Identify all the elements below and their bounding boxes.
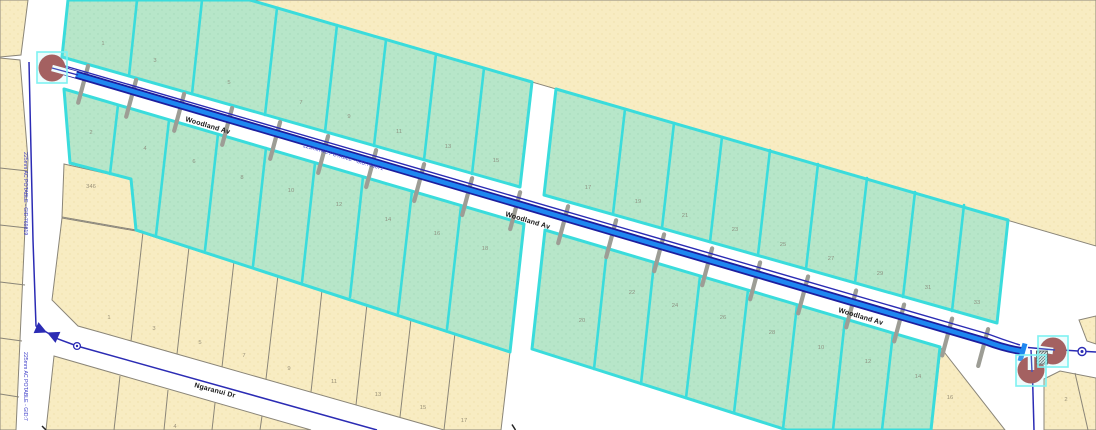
parcel-number: 26	[720, 315, 726, 321]
parcel-number: 25	[780, 242, 786, 248]
pipe-attribute-label: 225mm AC POTABLE - GID:7	[22, 352, 28, 421]
parcel-number: 1	[107, 315, 110, 321]
service-lateral	[978, 329, 988, 366]
parcel-number: 3	[152, 326, 155, 332]
parcel-number: 33	[974, 300, 980, 306]
parcel-number: 2	[89, 130, 92, 136]
selection-box	[1038, 336, 1068, 367]
parcel-number: 11	[331, 379, 337, 385]
parcel-number: 15	[493, 158, 499, 164]
parcel-number: 28	[769, 330, 775, 336]
parcel-number: 16	[947, 395, 953, 401]
parcel-number: 22	[629, 290, 635, 296]
parcel-number: 31	[925, 285, 931, 291]
pipe-attribute-label: 225mm AC POTABLE - GID:769819	[22, 152, 28, 235]
tan-parcel-16	[931, 348, 1005, 430]
parcel-number: 1	[101, 41, 104, 47]
fitting-dot	[1081, 350, 1084, 353]
service-lateral	[942, 319, 952, 356]
parcel-number: 11	[396, 129, 402, 135]
clipped-label-mark	[42, 426, 46, 430]
parcel-number: 13	[445, 144, 451, 150]
fitting-dot	[76, 345, 78, 347]
parcel-number: 12	[336, 202, 342, 208]
parcel-number: 10	[288, 188, 294, 194]
parcel-number: 24	[672, 303, 679, 309]
parcel-number: 12	[865, 359, 871, 365]
parcel-number: 3	[153, 58, 156, 64]
parcel-number: 8	[240, 175, 243, 181]
parcel-number: 5	[227, 80, 230, 86]
tan-block-junction-se	[1044, 371, 1096, 430]
parcel-number: 21	[682, 213, 688, 219]
selection-box	[37, 52, 67, 83]
parcel-number: 23	[732, 227, 738, 233]
parcel-number: 6	[192, 159, 195, 165]
map-svg[interactable]: 1357911131524681012141618171921232527293…	[0, 0, 1096, 430]
parcel-number: 5	[198, 340, 201, 346]
parcel-number: 16	[434, 231, 440, 237]
parcel-number: 20	[579, 318, 585, 324]
tan-parcel-top-left	[0, 0, 28, 57]
parcel-number: 18	[482, 246, 488, 252]
parcel-number: 14	[915, 374, 922, 380]
parcel-number: 27	[828, 256, 834, 262]
gis-map-canvas[interactable]: 1357911131524681012141618171921232527293…	[0, 0, 1096, 430]
parcel-number: 14	[385, 217, 392, 223]
parcel-number: 7	[242, 353, 245, 359]
parcel-number: 9	[347, 114, 350, 120]
parcel-number: 7	[299, 100, 302, 106]
parcel-number: 9	[287, 366, 290, 372]
parcel-number: 15	[420, 405, 426, 411]
parcel-number: 19	[635, 199, 641, 205]
valve-triangle	[45, 327, 61, 343]
parcel-number: 346	[86, 184, 96, 190]
clipped-label-mark	[512, 425, 516, 430]
parcel-number: 10	[818, 345, 824, 351]
parcel-number: 2	[1064, 397, 1067, 403]
parcel-number: 17	[585, 185, 591, 191]
gate-valve-icon[interactable]	[34, 322, 61, 343]
tan-parcel-junction-ne	[1079, 316, 1096, 344]
parcel-number: 29	[877, 271, 883, 277]
parcel-number: 13	[375, 392, 381, 398]
parcel-number: 17	[461, 418, 467, 424]
